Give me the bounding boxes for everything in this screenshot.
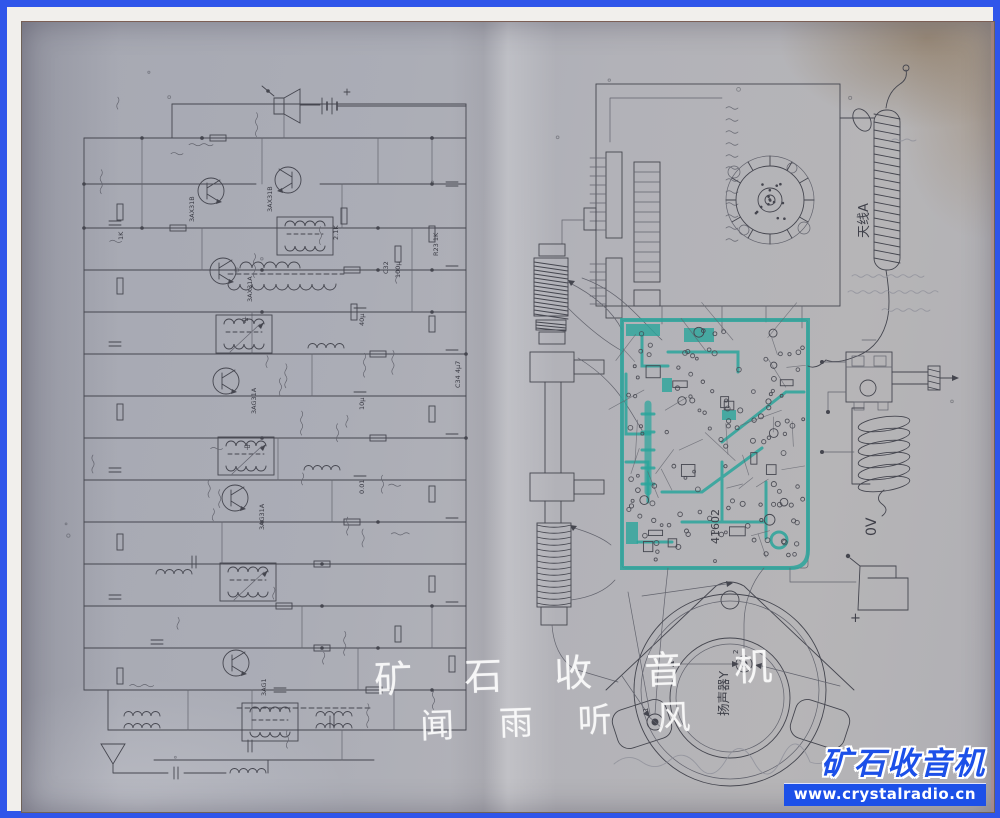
- site-badge-title: 矿石收音机: [784, 747, 986, 781]
- component-label: 1K: [117, 231, 125, 240]
- component-label: 中: [244, 442, 251, 451]
- vertical-note-column: [726, 107, 738, 242]
- component-label: C34 4μ7: [454, 361, 462, 388]
- zero-volt-label: 0V: [864, 517, 880, 536]
- watermark-line2: 闻 雨 听 风: [419, 689, 708, 748]
- component-label: 3AG31A: [250, 387, 258, 414]
- left-component-labels: 3AX31B3AX31B3AX31A3AG31A3AG31A3AG1C32100…: [117, 186, 462, 696]
- antenna-label: 天线A: [857, 203, 872, 238]
- scanned-schematic-photo: 3AX31B3AX31B3AX31A3AG31A3AG31A3AG1C32100…: [21, 21, 995, 813]
- battery-spring-drawing: [820, 408, 911, 516]
- component-label: 3AG31A: [258, 503, 266, 530]
- component-label: 3AX31B: [188, 196, 196, 222]
- component-label: 40μ: [358, 314, 366, 326]
- component-label: 3AG1: [260, 678, 268, 696]
- component-label: 2.1K: [332, 225, 340, 240]
- component-label: C32: [382, 261, 390, 274]
- pcb-number-label: 41602: [709, 509, 722, 544]
- component-label: 3AX31A: [246, 276, 254, 302]
- component-label: 10μ: [358, 398, 366, 410]
- battery-plus-label: +: [850, 611, 861, 626]
- component-label: R23 1K: [432, 232, 440, 256]
- component-label: 0.01: [358, 480, 366, 494]
- site-badge-url: www.crystalradio.cn: [784, 783, 986, 806]
- photo-edge-artifact: [991, 22, 994, 812]
- volume-pot-drawing: [820, 340, 959, 414]
- white-photo-border: 3AX31B3AX31B3AX31A3AG31A3AG31A3AG1C32100…: [7, 7, 993, 811]
- component-label: 中: [242, 315, 249, 324]
- site-badge: 矿石收音机 www.crystalradio.cn: [784, 747, 986, 806]
- dial-mechanism-drawing: [726, 156, 814, 244]
- component-label: 3AX31B: [266, 186, 274, 212]
